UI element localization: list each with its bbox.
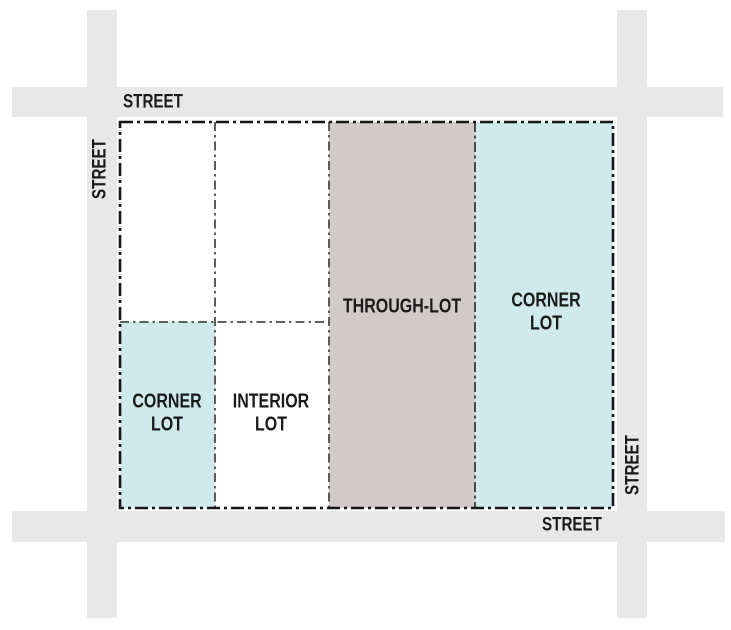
street-label-left: STREET: [88, 139, 110, 199]
corner-lot-southwest-label-line1: CORNER: [132, 390, 201, 412]
interior-lot-label-line1: INTERIOR: [233, 390, 309, 412]
through-lot-label: THROUGH-LOT: [343, 295, 461, 317]
corner-lot-northeast-label-line2: LOT: [530, 312, 562, 334]
diagram-canvas: STREET STREET STREET STREET THROUGH-LOT …: [0, 0, 731, 630]
lot-open-north-fill: [215, 122, 329, 322]
street-label-bottom: STREET: [542, 513, 602, 535]
street-band-left: [87, 10, 117, 618]
interior-lot-label-line2: LOT: [255, 413, 287, 435]
corner-lot-northeast-label-line1: CORNER: [511, 289, 580, 311]
street-band-right: [617, 10, 647, 618]
street-band-top: [12, 87, 723, 117]
lot-types-diagram: STREET STREET STREET STREET THROUGH-LOT …: [0, 0, 731, 630]
street-label-right: STREET: [621, 435, 643, 495]
street-label-top: STREET: [123, 90, 183, 112]
lot-open-northwest-fill: [120, 122, 215, 322]
corner-lot-southwest-label-line2: LOT: [151, 413, 183, 435]
